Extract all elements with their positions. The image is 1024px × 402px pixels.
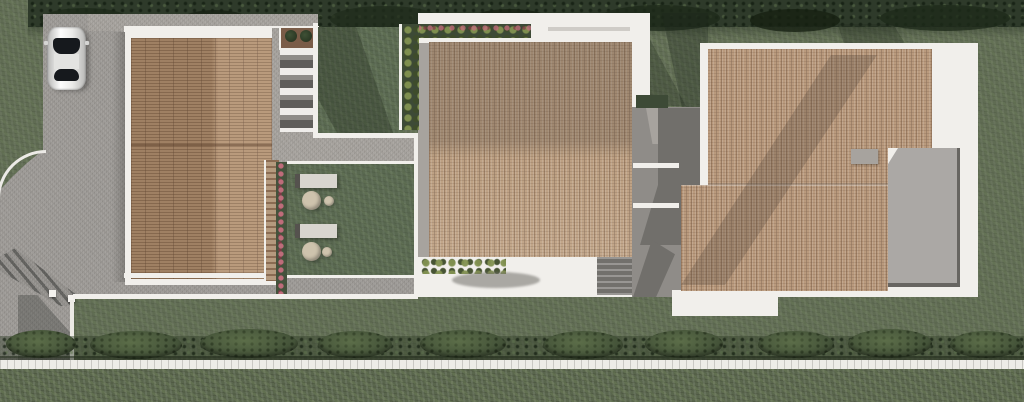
hedge-bush bbox=[848, 329, 932, 358]
hedge-bush bbox=[758, 331, 834, 358]
car-mirror-left bbox=[44, 41, 48, 45]
garden-bed-left bbox=[402, 24, 419, 130]
car-mirror-right bbox=[85, 41, 89, 45]
left-house-roof-ridge bbox=[131, 144, 272, 146]
chimney bbox=[851, 149, 878, 164]
round-table-small bbox=[322, 247, 332, 257]
left-house-roof-shading bbox=[131, 38, 272, 279]
gate-post-left bbox=[49, 290, 56, 297]
inner-courtyard-white-band bbox=[633, 203, 679, 208]
hedge-bush bbox=[200, 329, 298, 358]
garden-path bbox=[0, 360, 1024, 369]
hedge-bush bbox=[645, 330, 723, 358]
right-house-apron-extension bbox=[672, 290, 778, 316]
bottom-grass bbox=[0, 369, 1024, 402]
hedge-bush bbox=[420, 330, 506, 358]
mid-house-apron-right bbox=[630, 13, 650, 107]
lawn-top-white-line bbox=[287, 161, 418, 164]
flat-roof-terrace bbox=[888, 148, 960, 287]
round-table-large bbox=[302, 191, 321, 210]
courtyard-border-left bbox=[313, 23, 318, 138]
car-roof bbox=[54, 54, 79, 69]
car-rear-window bbox=[54, 69, 79, 81]
hedge-bush bbox=[543, 331, 623, 359]
hedge-bush bbox=[318, 331, 392, 358]
site-plan-canvas bbox=[0, 0, 1024, 402]
round-table-large bbox=[302, 242, 321, 261]
front-fence-line bbox=[73, 294, 418, 299]
planter-shrub bbox=[300, 30, 312, 42]
mid-house-roof-shading bbox=[429, 42, 632, 257]
inner-courtyard-grass-patch bbox=[636, 95, 668, 108]
inner-courtyard-white-band bbox=[633, 163, 679, 168]
garden-bed-white-border bbox=[399, 24, 402, 130]
sun-lounger bbox=[295, 174, 337, 188]
car bbox=[47, 27, 86, 90]
planter-shrub bbox=[285, 30, 297, 42]
sun-lounger bbox=[295, 224, 337, 238]
hedge-bush bbox=[90, 331, 182, 359]
hedge-bush bbox=[950, 331, 1022, 358]
car-windshield bbox=[53, 38, 80, 54]
mid-house-roof-step-line bbox=[548, 27, 637, 31]
round-table-small bbox=[324, 196, 334, 206]
hedge-bush bbox=[6, 330, 76, 358]
paving-band bbox=[276, 138, 418, 163]
stair-strip bbox=[280, 48, 313, 132]
garden-bed-top-flowers bbox=[403, 24, 531, 33]
flower-border bbox=[276, 162, 287, 298]
shrub-row-shadow bbox=[452, 272, 540, 288]
